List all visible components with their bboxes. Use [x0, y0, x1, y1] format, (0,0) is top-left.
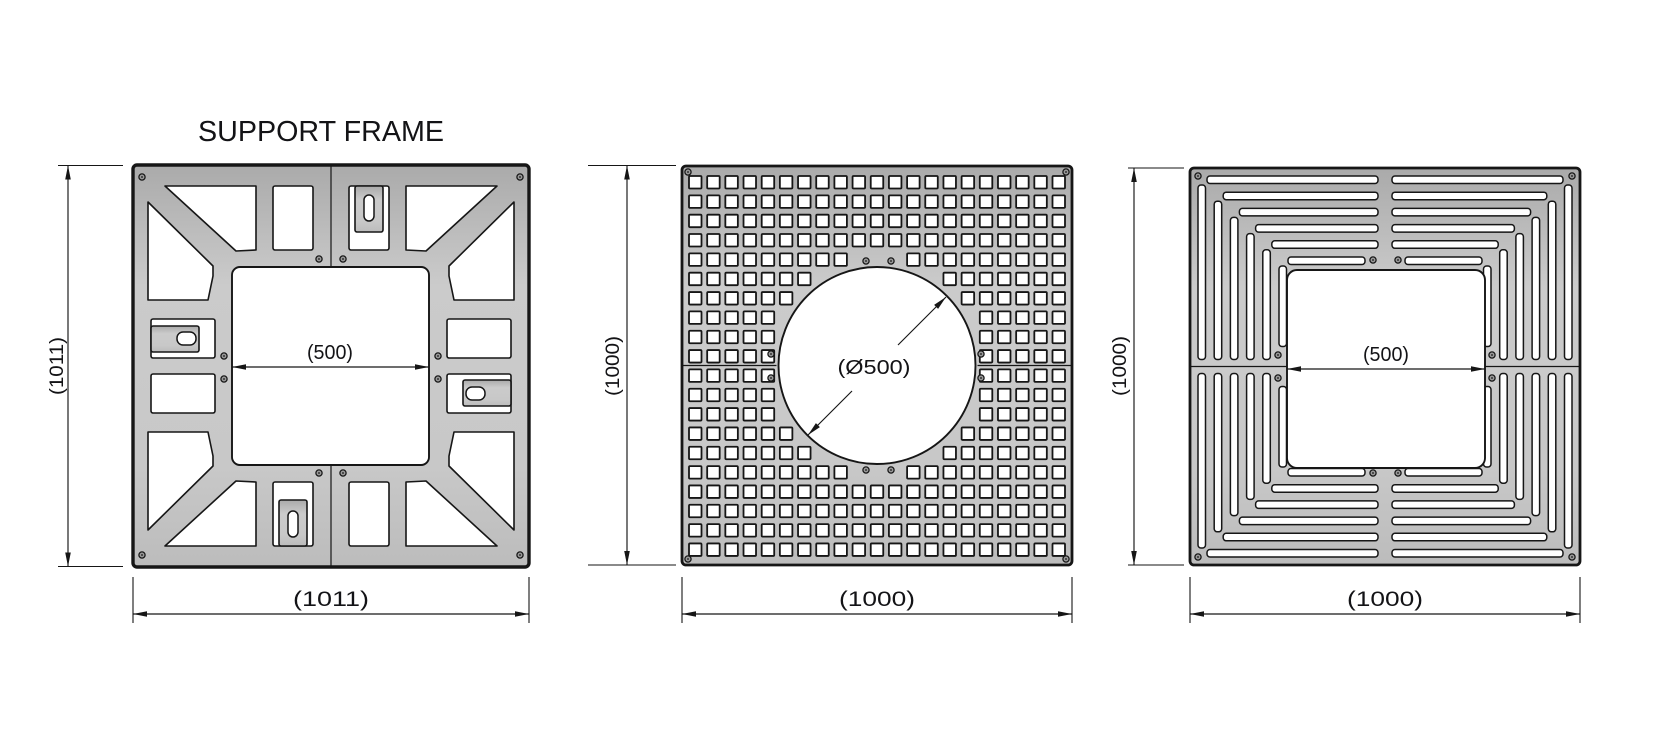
slat-slot	[1392, 192, 1547, 200]
slat-slot	[1392, 533, 1547, 541]
slat-slot	[1272, 241, 1378, 249]
slat-slot	[1392, 501, 1514, 509]
slat-slot	[1256, 501, 1378, 509]
slat-slot	[1565, 185, 1573, 360]
screw-hole-center	[1197, 556, 1199, 558]
dimension-arrow	[1131, 168, 1137, 182]
slat-slot	[1532, 217, 1540, 359]
screw-hole-center	[1397, 259, 1399, 261]
screw-hole-center	[1277, 354, 1279, 356]
slat-slot	[1405, 257, 1482, 265]
slat-slot	[1392, 176, 1563, 184]
slatted-grate-height-dim-label: (1000)	[1110, 336, 1131, 396]
slat-slot	[1198, 185, 1206, 360]
screw-hole-center	[1571, 175, 1573, 177]
slat-slot	[1214, 201, 1222, 359]
screw-hole-center	[1491, 377, 1493, 379]
slat-slot	[1288, 257, 1365, 265]
slat-slot	[1500, 374, 1508, 484]
slatted-grate-opening-dim-label: (500)	[1363, 344, 1409, 366]
slat-slot	[1247, 374, 1255, 500]
slat-slot	[1214, 374, 1222, 532]
slat-slot	[1288, 469, 1365, 477]
slat-slot	[1392, 485, 1498, 493]
screw-hole-center	[1197, 175, 1199, 177]
screw-hole-center	[1491, 354, 1493, 356]
dimension-arrow	[1190, 611, 1204, 617]
slat-slot	[1256, 225, 1378, 233]
slat-slot	[1223, 192, 1378, 200]
slat-slot	[1230, 374, 1238, 516]
slatted-grate-geometry	[1190, 168, 1580, 565]
dimension-arrow	[1566, 611, 1580, 617]
slat-slot	[1230, 217, 1238, 359]
slat-slot	[1392, 550, 1563, 558]
slat-slot	[1565, 374, 1573, 549]
slat-slot	[1532, 374, 1540, 516]
slat-slot	[1207, 550, 1378, 558]
slat-slot	[1263, 374, 1271, 484]
slatted-grate-width-dim-label: (1000)	[1347, 588, 1423, 611]
slat-slot	[1516, 374, 1524, 500]
slat-slot	[1548, 201, 1556, 359]
screw-hole-center	[1277, 377, 1279, 379]
slat-slot	[1247, 234, 1255, 360]
slat-slot	[1405, 469, 1482, 477]
screw-hole-center	[1372, 472, 1374, 474]
slat-slot	[1392, 241, 1498, 249]
slat-slot	[1279, 266, 1287, 347]
dimension-arrow	[1131, 551, 1137, 565]
slatted-grate-view: (1000) (1000) (500)	[0, 0, 1669, 739]
slat-slot	[1392, 225, 1514, 233]
slat-slot	[1263, 250, 1271, 360]
slat-slot	[1198, 374, 1206, 549]
screw-hole-center	[1372, 259, 1374, 261]
slat-slot	[1207, 176, 1378, 184]
slat-slot	[1548, 374, 1556, 532]
slat-slot	[1239, 517, 1378, 525]
slat-slot	[1392, 208, 1531, 216]
technical-drawing-canvas: SUPPORT FRAME (1011) (1011) (500) (1000)…	[0, 0, 1669, 739]
screw-hole-center	[1397, 472, 1399, 474]
slat-slot	[1279, 387, 1287, 468]
slat-slot	[1239, 208, 1378, 216]
slat-slot	[1500, 250, 1508, 360]
screw-hole-center	[1571, 556, 1573, 558]
slat-slot	[1272, 485, 1378, 493]
slat-slot	[1223, 533, 1378, 541]
slat-slot	[1392, 517, 1531, 525]
slat-slot	[1516, 234, 1524, 360]
